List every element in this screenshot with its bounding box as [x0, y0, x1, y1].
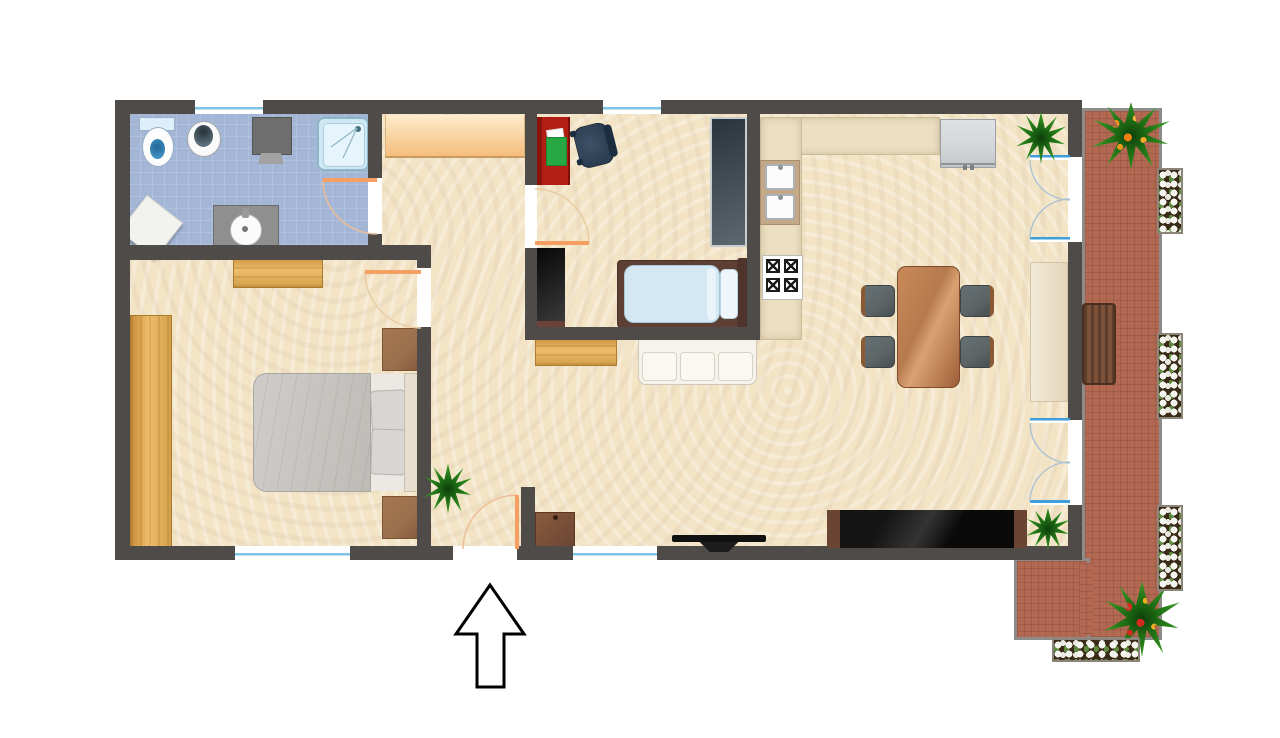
wall-study-south	[525, 327, 760, 340]
wall-entry-stub	[521, 487, 535, 547]
flower-box	[1157, 168, 1183, 234]
shower-tray	[317, 117, 369, 171]
burner-icon	[784, 278, 798, 292]
flower-box	[1052, 638, 1140, 662]
single-bed-pillow	[720, 269, 738, 319]
sink-basin	[765, 164, 795, 190]
dining-chair	[960, 336, 994, 368]
study-wardrobe	[710, 117, 747, 247]
hall-closet	[385, 115, 525, 158]
shower-head-icon	[355, 126, 361, 132]
dining-chair	[861, 336, 895, 368]
balcony-bench	[1082, 303, 1116, 385]
dining-chair	[960, 285, 994, 317]
toilet-water	[150, 139, 165, 159]
wall-west	[115, 100, 130, 560]
refrigerator-door-line	[941, 163, 995, 165]
balcony-floor-seam	[1079, 563, 1093, 635]
study-door-opening	[525, 185, 537, 248]
bedroom-door-opening	[417, 268, 431, 327]
media-cabinet-end	[1014, 510, 1027, 548]
nightstand-south	[382, 496, 422, 539]
dining-chair	[861, 285, 895, 317]
french-door-leaf	[1030, 155, 1070, 160]
bedroom-window	[235, 546, 350, 560]
toilet-icon	[142, 127, 174, 167]
kitchen-sink-unit	[760, 160, 800, 225]
burner-icon	[766, 278, 780, 292]
entrance-arrow-shape	[456, 585, 524, 687]
bidet-icon	[187, 121, 221, 157]
entry-cabinet-handle	[553, 515, 558, 520]
bathroom-vanity	[213, 205, 279, 250]
stove	[762, 255, 803, 300]
vanity-drain	[242, 226, 248, 232]
double-bed-blanket	[253, 373, 371, 492]
nightstand-north	[382, 328, 422, 371]
refrigerator-handle	[970, 165, 974, 170]
washing-machine-door	[258, 153, 284, 164]
entry-door-opening	[453, 546, 517, 560]
sofa-cushion	[680, 352, 715, 381]
floor-plan	[0, 0, 1280, 738]
flower-box	[1157, 333, 1183, 419]
bathroom-window	[195, 100, 263, 114]
sink-basin	[765, 194, 795, 220]
sofa-cushion	[642, 352, 677, 381]
balcony-door-opening-lower	[1068, 420, 1082, 505]
display-cabinet	[1030, 262, 1068, 402]
single-bed-blanket-fold	[707, 268, 716, 320]
living-room-window	[573, 546, 657, 560]
kitchen-counter-left	[760, 117, 802, 340]
french-door-leaf	[1030, 500, 1070, 505]
sideboard	[535, 337, 617, 366]
sink-faucet-icon	[778, 195, 783, 200]
bathroom-door-opening	[368, 178, 382, 234]
french-door-leaf	[1030, 237, 1070, 242]
media-cabinet	[827, 510, 1027, 548]
burner-icon	[784, 259, 798, 273]
vanity-faucet	[242, 208, 249, 218]
tv-screen	[672, 535, 766, 542]
refrigerator	[940, 119, 996, 168]
wall-bathroom-south	[115, 245, 431, 260]
media-cabinet-body	[840, 510, 1014, 548]
double-bed-pillow	[370, 428, 407, 475]
media-cabinet-end	[827, 510, 840, 548]
bedroom-wardrobe	[130, 315, 172, 548]
study-window	[603, 100, 661, 114]
wall-study-east	[747, 100, 760, 340]
flower-box	[1157, 505, 1183, 591]
study-black-closet	[537, 248, 565, 327]
single-bed-mattress	[624, 265, 720, 323]
washing-machine	[252, 117, 292, 155]
refrigerator-handle	[963, 165, 967, 170]
balcony-door-opening-upper	[1068, 157, 1082, 242]
bidet-basin	[194, 125, 213, 147]
entry-cabinet	[535, 512, 575, 550]
sink-faucet-icon	[778, 165, 783, 170]
french-door-leaf	[1030, 418, 1070, 423]
book-green	[546, 137, 567, 166]
dining-table	[897, 266, 960, 388]
burner-icon	[766, 259, 780, 273]
sofa-cushion	[718, 352, 753, 381]
